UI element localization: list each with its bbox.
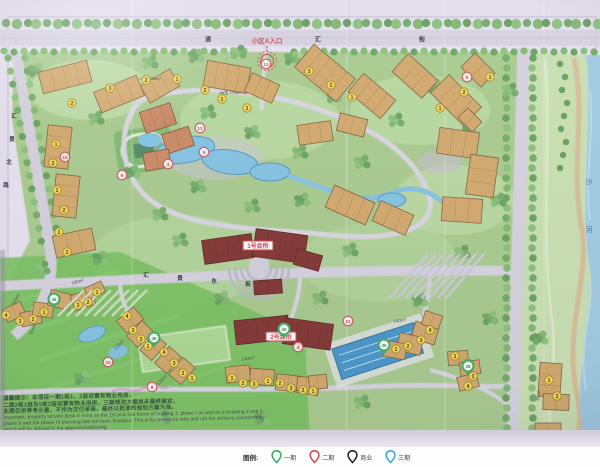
tree	[502, 334, 510, 342]
tree	[503, 304, 511, 312]
tree	[454, 247, 460, 253]
tree	[62, 19, 70, 27]
tree	[342, 245, 348, 251]
tree	[528, 284, 536, 292]
tree	[244, 201, 250, 207]
tree	[150, 55, 157, 62]
building-block	[436, 127, 479, 158]
tree	[110, 48, 117, 55]
tree	[463, 19, 471, 27]
tree	[303, 199, 310, 206]
photo-of-site-plan[interactable]: 通汇街汇景北路汇景东街沙河小区A入口1号会所2号会所C2型 258m²A6型 1…	[0, 0, 600, 447]
red-marker-number: 5	[203, 150, 206, 156]
tree	[529, 94, 537, 102]
tree	[440, 47, 447, 54]
tree	[529, 134, 537, 142]
yellow-marker-number: 1	[267, 379, 270, 385]
tree	[231, 53, 237, 59]
tree	[529, 254, 537, 262]
tree	[91, 19, 101, 29]
tree	[499, 199, 506, 206]
tree	[529, 234, 537, 242]
tree	[239, 51, 246, 58]
tree	[502, 154, 510, 162]
tree	[2, 19, 10, 27]
tree	[16, 120, 23, 127]
yellow-marker-number: 2	[463, 90, 466, 96]
tree	[33, 211, 40, 218]
legend-item: 三期	[385, 450, 410, 464]
tree	[92, 253, 98, 259]
tree	[380, 47, 387, 54]
tree	[223, 297, 230, 304]
tree	[36, 63, 43, 70]
tree	[450, 48, 457, 55]
tree	[75, 379, 81, 385]
yellow-marker-number: 3	[472, 374, 475, 380]
tree	[100, 251, 107, 258]
tree	[43, 172, 50, 179]
yellow-marker-number: 2	[182, 371, 185, 377]
yellow-marker-number: 3	[109, 86, 112, 92]
tree	[528, 104, 536, 112]
tree	[560, 152, 566, 158]
tree	[173, 241, 179, 247]
tree	[10, 48, 17, 55]
tree	[38, 146, 45, 153]
tree	[100, 47, 107, 54]
tree	[397, 119, 404, 126]
tree	[503, 184, 511, 192]
tree	[23, 159, 30, 166]
tree	[223, 19, 231, 27]
yellow-marker-number: 2	[279, 381, 282, 387]
tree	[132, 165, 139, 172]
disclaimer-block: 温馨提示：本项目一期1栋1、2层设置有物业用房，二期2栋1层及5栋2层设置有物业…	[3, 388, 314, 433]
road-name-char: 汇	[143, 271, 149, 279]
building	[465, 154, 498, 198]
tree	[480, 47, 487, 54]
tree	[532, 333, 538, 339]
yellow-marker-number: 2	[71, 101, 74, 107]
tree	[151, 61, 158, 68]
tree	[300, 145, 307, 152]
tree	[208, 105, 215, 112]
tree	[403, 19, 411, 27]
tree	[153, 215, 159, 221]
tree	[252, 199, 259, 206]
tree	[53, 19, 63, 29]
yellow-marker-number: 1	[43, 310, 46, 316]
tree	[528, 124, 536, 132]
tree	[343, 19, 351, 27]
yellow-marker-number: 1	[56, 188, 59, 194]
tree	[151, 19, 161, 29]
road-name-char: 通	[205, 36, 211, 44]
yellow-marker-number: 1	[221, 97, 224, 103]
tree	[528, 304, 536, 312]
tree	[389, 121, 395, 127]
yellow-marker-number: 4	[5, 313, 8, 319]
tree	[510, 48, 517, 55]
tree	[540, 331, 547, 338]
tree	[34, 263, 40, 269]
tree	[28, 185, 35, 192]
tree	[90, 48, 97, 55]
tree	[503, 364, 511, 372]
tree	[120, 47, 127, 54]
legend-item: 二期	[309, 450, 334, 464]
tree	[400, 47, 407, 54]
yellow-marker-number: 3	[308, 69, 311, 75]
tree	[320, 291, 327, 298]
tree	[19, 133, 26, 140]
yellow-marker-number: 1	[454, 354, 457, 360]
tree	[529, 74, 537, 82]
tree	[529, 214, 537, 222]
yellow-marker-number: 4	[429, 328, 432, 334]
tree	[142, 57, 148, 63]
tree	[580, 47, 587, 54]
tree	[180, 233, 187, 240]
tree	[50, 48, 57, 55]
tree	[370, 48, 377, 55]
tree	[372, 19, 382, 29]
tree	[482, 313, 488, 319]
club-label: 1号会所	[247, 242, 268, 250]
road-name-char: 街	[244, 280, 251, 288]
tree	[293, 19, 303, 29]
tree	[33, 120, 40, 127]
tree	[93, 259, 99, 265]
legend-bar: 图例: 一期 二期 商业 三期	[0, 447, 600, 467]
building-block	[297, 121, 333, 146]
tree	[528, 64, 536, 72]
tree	[331, 19, 341, 29]
tree	[593, 19, 600, 29]
tree	[152, 209, 158, 215]
yellow-marker-number: 2	[87, 300, 90, 306]
building	[297, 121, 333, 146]
tree	[97, 117, 104, 124]
tree	[528, 184, 536, 192]
tree	[562, 74, 568, 80]
tree	[283, 19, 291, 27]
tree	[89, 119, 95, 125]
tree	[31, 107, 38, 114]
tree	[74, 373, 80, 379]
tree	[161, 213, 168, 220]
tree	[29, 94, 36, 101]
tree	[113, 19, 123, 29]
tree	[313, 299, 319, 305]
tree	[26, 81, 33, 88]
tree	[528, 204, 536, 212]
tree	[420, 47, 427, 54]
tree	[330, 48, 337, 55]
tree	[528, 364, 536, 372]
tree	[253, 205, 260, 212]
tree	[143, 63, 149, 69]
tree	[528, 244, 536, 252]
photo-edge-shadow	[0, 430, 600, 447]
tree	[503, 164, 511, 172]
tree	[160, 207, 167, 214]
tree	[40, 47, 47, 54]
yellow-marker-number: 1	[147, 344, 150, 350]
tree	[170, 48, 177, 55]
yellow-marker-number: 2	[140, 337, 143, 343]
tree	[388, 115, 394, 121]
tree	[350, 243, 357, 250]
green-pin-number: 40	[281, 327, 287, 332]
road-name-char: 景	[176, 274, 183, 282]
tree	[294, 195, 300, 201]
tree	[26, 172, 33, 179]
tree	[473, 19, 483, 29]
tree	[284, 53, 290, 59]
tree	[302, 19, 310, 27]
tree	[390, 48, 397, 55]
tree	[295, 201, 301, 207]
tree	[245, 207, 251, 213]
tree	[503, 64, 511, 72]
tree	[285, 59, 291, 65]
yellow-marker-number: 2	[330, 83, 333, 89]
tree	[503, 264, 511, 272]
road-name-char: 景	[8, 135, 15, 143]
tree	[528, 224, 536, 232]
tree	[430, 48, 437, 55]
tree	[83, 377, 90, 384]
tree	[21, 54, 28, 61]
tree	[233, 19, 243, 29]
tree	[35, 225, 42, 232]
tree	[20, 47, 27, 54]
tree	[201, 113, 207, 119]
tree	[502, 214, 510, 222]
tree	[190, 181, 196, 187]
tree	[502, 414, 510, 422]
central-pool	[138, 133, 162, 147]
red-marker-number: 15	[62, 155, 68, 161]
tree	[252, 19, 262, 29]
legend: 图例: 一期 二期 商业 三期	[243, 450, 410, 464]
tree	[150, 48, 157, 55]
tree	[14, 107, 21, 114]
tree	[502, 294, 510, 302]
tree	[396, 113, 403, 120]
tree	[541, 337, 548, 344]
tree	[542, 19, 550, 27]
tree	[510, 83, 517, 90]
tree	[222, 291, 229, 298]
tree	[528, 84, 536, 92]
tree	[362, 395, 369, 402]
tree	[321, 297, 328, 304]
yellow-marker-number: 1	[58, 230, 61, 236]
yellow-marker-number: 1	[176, 77, 179, 83]
tree	[9, 81, 16, 88]
tree	[293, 153, 299, 159]
tree	[490, 48, 497, 55]
tree	[354, 157, 360, 163]
tree	[558, 126, 564, 132]
tree	[140, 47, 147, 54]
tree	[529, 414, 537, 422]
yellow-marker-number: 4	[163, 350, 166, 356]
tree	[559, 87, 565, 93]
building-block	[441, 197, 483, 224]
tree	[410, 48, 417, 55]
tree	[529, 54, 537, 62]
red-marker-number: 21	[345, 319, 351, 325]
tree	[198, 179, 205, 186]
tree	[343, 251, 349, 257]
tree	[529, 354, 537, 362]
tree	[200, 107, 206, 113]
tree	[533, 339, 539, 345]
tree	[503, 384, 511, 392]
green-pin-number: 49	[51, 297, 57, 302]
tree	[4, 54, 11, 61]
tree	[122, 19, 130, 27]
tree	[502, 354, 510, 362]
tree	[72, 19, 82, 29]
tree	[560, 47, 567, 54]
yellow-marker-number: 1	[489, 75, 492, 81]
tree	[503, 344, 511, 352]
tree	[271, 19, 281, 29]
legend-pin-icon	[271, 450, 282, 464]
yellow-marker-number: 2	[66, 250, 69, 256]
tree	[192, 19, 202, 29]
tree	[502, 134, 510, 142]
tree	[302, 193, 309, 200]
red-marker-number: 4	[297, 345, 300, 351]
tree	[354, 397, 360, 403]
tree	[528, 384, 536, 392]
green-pin-number: 39	[381, 343, 387, 348]
tree	[590, 48, 597, 55]
yellow-marker-number: 3	[77, 303, 80, 309]
tree	[502, 374, 510, 382]
legend-pin-icon	[309, 450, 320, 464]
tree	[292, 147, 298, 153]
tree	[21, 146, 28, 153]
tree	[483, 319, 489, 325]
tree	[253, 131, 260, 138]
tree	[35, 269, 41, 275]
tree	[28, 65, 34, 71]
yellow-marker-number: 1	[351, 95, 354, 101]
legend-title: 图例:	[243, 452, 258, 462]
tree	[45, 185, 52, 192]
tree	[502, 54, 510, 62]
tree	[529, 194, 537, 202]
red-marker-number: 10	[105, 360, 111, 366]
tree	[422, 19, 430, 27]
tree	[301, 151, 308, 158]
tree	[503, 104, 511, 112]
tree	[491, 317, 498, 324]
green-pin-number: 46	[151, 336, 157, 341]
legend-item-label: 二期	[322, 453, 334, 462]
building	[441, 197, 483, 224]
yellow-marker-number: 2	[145, 78, 148, 84]
tree	[351, 249, 358, 256]
tree	[292, 51, 299, 58]
legend-item: 一期	[271, 450, 296, 464]
red-marker-number: 13	[263, 62, 269, 68]
tree	[529, 314, 537, 322]
tree	[502, 74, 510, 82]
tree	[533, 19, 543, 29]
yellow-marker-number: 1	[439, 106, 442, 112]
amphitheater-stage	[249, 256, 269, 276]
tree	[528, 164, 536, 172]
yellow-marker-number: 4	[126, 314, 129, 320]
tree	[529, 154, 537, 162]
tree	[191, 187, 197, 193]
tree	[451, 19, 461, 29]
tree	[460, 47, 467, 54]
tree	[528, 324, 536, 332]
tree	[557, 165, 563, 171]
tree	[571, 19, 581, 29]
yellow-marker-number: 2	[63, 208, 66, 214]
tree	[355, 403, 361, 409]
tree	[500, 47, 507, 54]
yellow-marker-number: 1	[231, 376, 234, 382]
tree	[557, 61, 563, 67]
yellow-marker-number: 3	[420, 338, 423, 344]
tree	[503, 284, 511, 292]
tree	[340, 47, 347, 54]
tree	[70, 48, 77, 55]
tree	[413, 301, 419, 307]
central-pool	[250, 163, 290, 181]
road-name-char: 汇	[315, 36, 321, 44]
tree	[36, 133, 43, 140]
tree	[492, 19, 502, 29]
red-marker-number: 12	[197, 126, 203, 132]
yellow-marker-number: 4	[467, 384, 470, 390]
tree	[413, 19, 423, 29]
yellow-marker-number: 2	[52, 161, 55, 167]
tree	[362, 19, 370, 27]
yellow-marker-number: 1	[395, 347, 398, 353]
yellow-marker-number: 1	[548, 378, 551, 384]
tree	[312, 293, 318, 299]
tree	[583, 19, 591, 27]
tree	[353, 19, 363, 29]
tree	[312, 19, 322, 29]
tree	[503, 244, 511, 252]
red-marker-number: 9	[466, 75, 469, 81]
road-name-char: 路	[3, 181, 9, 189]
river-name-char: 河	[586, 226, 593, 234]
tree	[502, 274, 510, 282]
tree	[60, 47, 67, 54]
legend-item: 商业	[347, 450, 372, 464]
yellow-marker-number: 2	[32, 317, 35, 323]
legend-item-label: 一期	[284, 453, 296, 462]
tree	[189, 57, 195, 63]
tree	[214, 293, 220, 299]
tree	[12, 94, 19, 101]
tree	[529, 294, 537, 302]
